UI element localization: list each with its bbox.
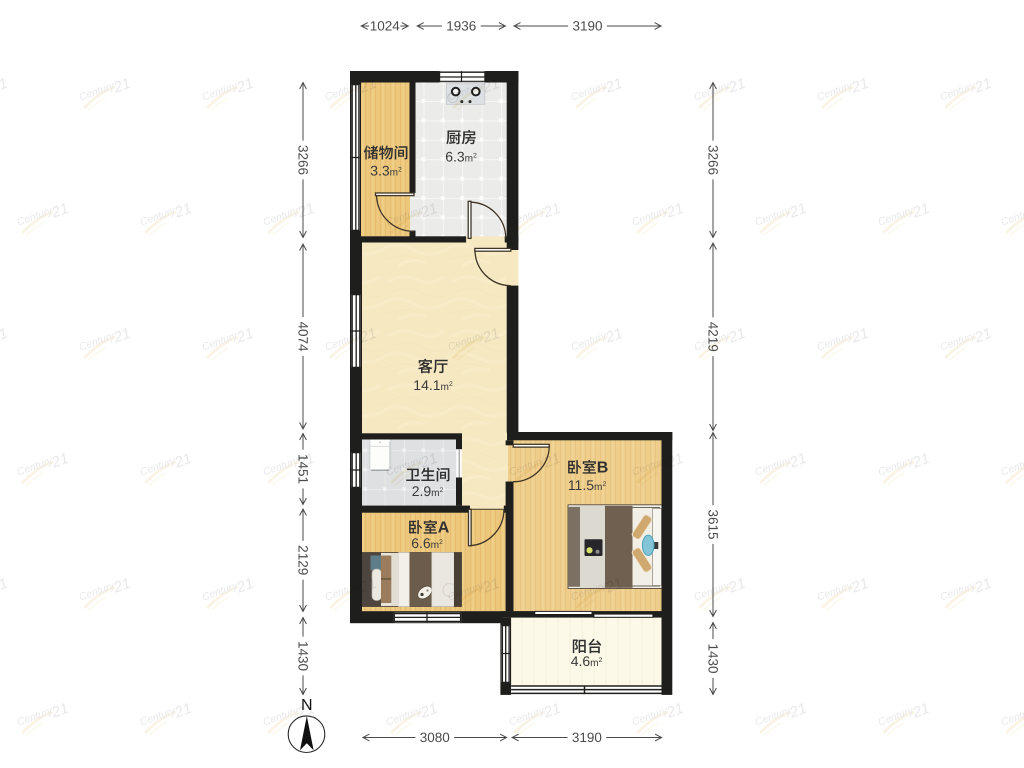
svg-text:3266: 3266 [705, 145, 720, 175]
svg-text:3266: 3266 [295, 145, 310, 175]
svg-text:3080: 3080 [420, 730, 450, 745]
svg-text:3190: 3190 [572, 19, 602, 34]
svg-text:A: A [438, 520, 450, 537]
svg-text:1430: 1430 [705, 643, 720, 673]
svg-text:1936: 1936 [446, 19, 476, 34]
svg-text:B: B [597, 460, 609, 477]
svg-text:1024: 1024 [370, 19, 401, 34]
svg-text:3190: 3190 [572, 730, 602, 745]
svg-text:1430: 1430 [295, 641, 310, 671]
svg-text:4074: 4074 [295, 321, 310, 352]
svg-text:3615: 3615 [705, 509, 720, 539]
svg-text:2129: 2129 [295, 545, 310, 575]
